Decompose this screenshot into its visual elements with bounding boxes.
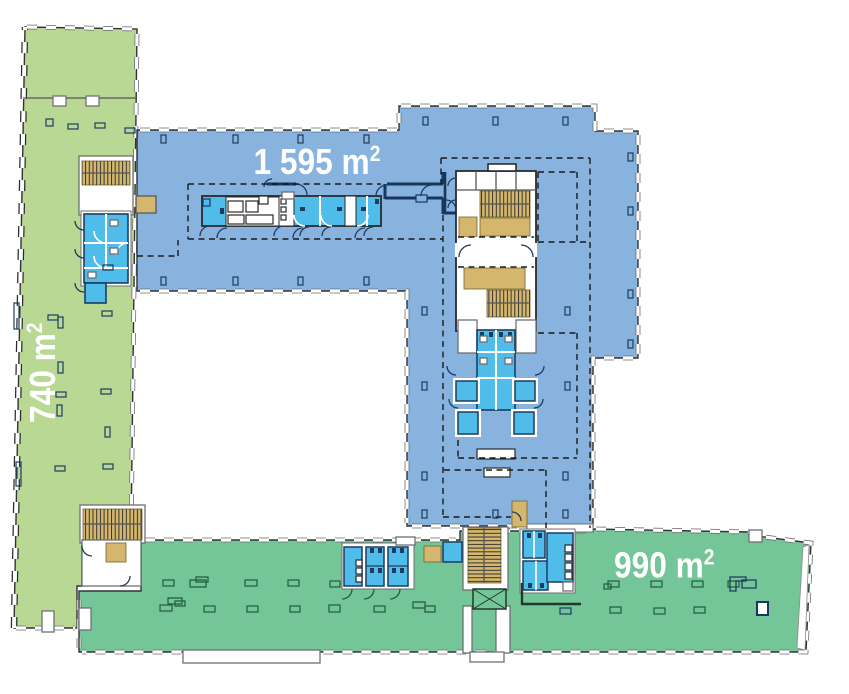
svg-text:990 m2: 990 m2 (614, 545, 714, 586)
svg-text:1 595 m2: 1 595 m2 (254, 142, 381, 183)
svg-text:740 m2: 740 m2 (23, 323, 64, 423)
